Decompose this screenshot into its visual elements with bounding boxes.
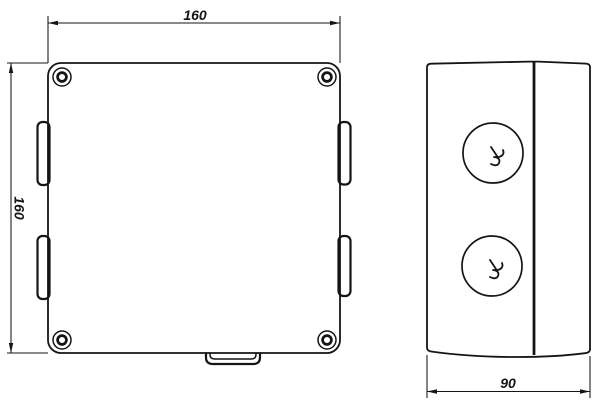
corner-screw-top-left <box>53 68 71 86</box>
corner-screw-bottom-right <box>318 331 336 349</box>
dimension-arrow-right <box>580 389 590 393</box>
front-height-dimension: 160 <box>7 63 48 353</box>
knockout-lower <box>462 236 522 296</box>
front-width-dimension: 160 <box>48 7 340 63</box>
screw-head-icon <box>318 331 336 349</box>
side-depth-label: 90 <box>500 375 516 391</box>
dimension-arrow-top <box>9 63 13 73</box>
knockout-upper <box>463 123 523 183</box>
knockout-circle <box>463 123 523 183</box>
front-width-label: 160 <box>183 7 207 23</box>
corner-screw-bottom-left <box>53 331 71 349</box>
membrane-mark-icon <box>490 260 503 278</box>
membrane-mark-icon <box>491 147 504 165</box>
corner-screw-top-right <box>318 68 336 86</box>
dimension-arrow-right <box>330 21 340 25</box>
side-outline <box>427 62 590 357</box>
screw-head-icon <box>53 331 71 349</box>
dimension-arrow-left <box>48 21 58 25</box>
front-height-label: 160 <box>12 196 28 220</box>
dimension-arrow-left <box>427 389 437 393</box>
side-depth-dimension: 90 <box>427 355 590 398</box>
knockout-circle <box>462 236 522 296</box>
mounting-tabs <box>38 122 351 364</box>
drawing-canvas: 160 160 <box>0 0 600 404</box>
screw-head-icon <box>53 68 71 86</box>
technical-drawing: 160 160 <box>0 0 600 404</box>
bottom-tab-inner-line <box>210 354 256 360</box>
front-outline <box>48 63 340 353</box>
screw-head-icon <box>318 68 336 86</box>
dimension-arrow-bottom <box>9 343 13 353</box>
front-view: 160 160 <box>7 7 351 364</box>
side-view: 90 <box>427 62 590 398</box>
